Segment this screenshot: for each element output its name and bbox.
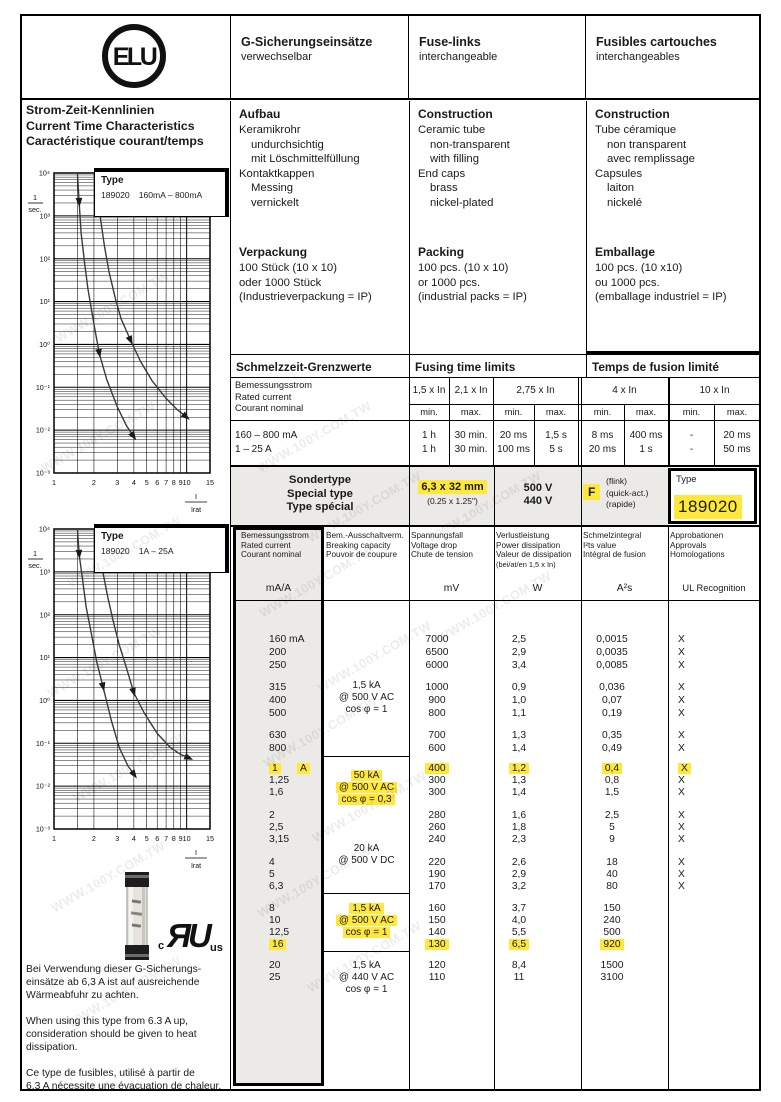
ul-mark-letters: ЯU [166, 917, 213, 954]
i2t-cell-text: 0,0035 [596, 647, 628, 658]
table-vline [578, 378, 579, 465]
voltage-drop-cell: 600 [397, 743, 477, 754]
construction-line: mit Löschmittelfüllung [239, 152, 403, 167]
i2t-cell-text: 5 [609, 822, 615, 833]
current-cell-text: 20 [269, 960, 280, 971]
breaking-group-line [324, 951, 409, 952]
column-header: ApprobationenApprovalsHomologations [670, 531, 725, 560]
power-dissipation-cell-text: 2,9 [512, 869, 526, 880]
ul-recognition-cell: X [678, 730, 685, 741]
left-column: Strom-Zeit-Kennlinien Current Time Chara… [20, 101, 230, 1089]
fusing-label-line: Bemessungsstrom [235, 380, 312, 392]
current-cell: 25 [269, 972, 280, 983]
logo-cell: ELU [20, 14, 230, 98]
power-dissipation-cell-text: 1,0 [512, 695, 526, 706]
packing-block: Emballage100 pcs. (10 x10)ou 1000 pcs.(e… [595, 245, 756, 305]
legend-values: 189020160mA – 800mA [101, 190, 219, 200]
chart-160ma-800ma: 10⁴10³10²10¹10⁰10⁻¹10⁻²10⁻³1sec.12345678… [20, 163, 230, 515]
i2t-cell-text: 240 [603, 915, 620, 926]
legend-type-value: 189020 [101, 190, 130, 200]
ul-recognition-cell-text: X [678, 682, 685, 693]
current-cell: 3,15 [269, 834, 289, 845]
construction-heading: Construction [418, 107, 580, 121]
minmax-header: min. [493, 407, 534, 417]
ul-recognition-cell-text: X [678, 775, 685, 786]
table-row: 20065002,90,0035X [231, 647, 760, 659]
construction-line: nickel-plated [418, 196, 580, 211]
footnotes: Bei Verwendung dieser G-Sicherungs-einsä… [26, 963, 228, 1102]
fusing-value: 1 h [409, 444, 449, 455]
axis-label: I [195, 848, 197, 857]
voltage-drop-cell: 110 [397, 972, 477, 983]
i2t-cell: 0,8 [576, 775, 648, 786]
footnote-line: Wärmeabfuhr zu achten. [26, 989, 228, 1002]
special-label-fr: Type spécial [231, 501, 409, 515]
table-row: 161306,5920 [231, 939, 760, 951]
current-cell: 2 [269, 810, 275, 821]
ul-recognition-cell-text: X [678, 834, 685, 845]
power-dissipation-cell: 2,6 [483, 857, 555, 868]
type-value: 189020 [674, 495, 742, 519]
axis-label: 10⁻³ [36, 469, 51, 478]
table-row: 25110113100 [231, 972, 760, 984]
column-unit: A²s [581, 583, 668, 594]
breaking-group-line [324, 756, 409, 757]
voltage-drop-cell: 120 [397, 960, 477, 971]
ul-recognition-cell-text: X [678, 743, 685, 754]
ul-recognition-cell-text: X [678, 881, 685, 892]
voltage-drop-cell: 220 [397, 857, 477, 868]
fusing-title-fr: Temps de fusion limité [586, 355, 760, 377]
axis-label: 10¹ [40, 297, 51, 306]
column-header-line: Voltage drop [411, 541, 473, 551]
fuse-size-inch: (0.25 x 1.25") [410, 496, 495, 506]
current-cell-text: 4 [269, 857, 275, 868]
table-vline [668, 527, 669, 1089]
fusing-label-line: Courant nominal [235, 403, 312, 415]
legend-type-label: Type [101, 531, 219, 542]
ul-recognition-cell-text: X [678, 822, 685, 833]
i2t-cell-text: 0,49 [602, 743, 622, 754]
table-row: 22801,62,5X [231, 810, 760, 822]
current-cell: 10 [269, 915, 280, 926]
column-unit: mV [409, 583, 494, 594]
column-header-line: Spannungsfall [411, 531, 473, 541]
footnote: Bei Verwendung dieser G-Sicherungs-einsä… [26, 963, 228, 1002]
power-dissipation-cell: 3,7 [483, 903, 555, 914]
info-column-2: ConstructionTube céramiquenon transparen… [586, 101, 760, 354]
voltage-drop-cell: 1000 [397, 682, 477, 693]
table-row: 42202,618X [231, 857, 760, 869]
power-dissipation-cell: 1,3 [483, 730, 555, 741]
ul-recognition-cell-text: X [678, 660, 685, 671]
voltage-drop-cell-text: 130 [425, 939, 448, 950]
current-cell: 200 [269, 647, 286, 658]
current-cell: 8 [269, 903, 275, 914]
fusing-value: 1 s [624, 444, 668, 455]
table-row: 101504,0240 [231, 915, 760, 927]
power-dissipation-cell-text: 2,6 [512, 857, 526, 868]
axis-label: 10⁻¹ [36, 383, 51, 392]
fusing-value: 30 min. [449, 430, 493, 441]
special-label-en: Special type [231, 488, 409, 502]
power-dissipation-cell-text: 3,4 [512, 660, 526, 671]
ul-recognition-cell: X [678, 775, 685, 786]
table-row: 8006001,40,49X [231, 743, 760, 755]
column-header-line: Chute de tension [411, 550, 473, 560]
power-dissipation-cell-text: 3,7 [512, 903, 526, 914]
column-unit: mA/A [233, 583, 324, 594]
axis-label: 7 [164, 834, 168, 843]
power-dissipation-cell-text: 2,5 [512, 634, 526, 645]
title-line-en: Current Time Characteristics [26, 119, 204, 135]
packing-line: 100 pcs. (10 x10) [595, 261, 756, 276]
construction-block: AufbauKeramikrohrundurchsichtigmit Lösch… [239, 107, 403, 210]
ul-recognition-cell: X [678, 708, 685, 719]
table-row: 31510000,90,036X [231, 682, 760, 694]
i2t-cell-text: 9 [609, 834, 615, 845]
i2t-cell-text: 40 [606, 869, 617, 880]
chart-legend: Type1890201A – 25A [94, 524, 229, 573]
voltage-drop-cell: 160 [397, 903, 477, 914]
footnote-line: Bei Verwendung dieser G-Sicherungs- [26, 963, 228, 976]
column-header-line: Pouvoir de coupure [326, 550, 404, 560]
axis-label: 5 [145, 834, 149, 843]
power-dissipation-cell: 5,5 [483, 927, 555, 938]
axis-label: I [195, 492, 197, 501]
voltage-drop-cell-text: 600 [428, 743, 445, 754]
voltage-drop-cell-text: 260 [428, 822, 445, 833]
axis-label: 8 [172, 478, 176, 487]
fusing-value: 400 ms [624, 430, 668, 441]
power-dissipation-cell-text: 4,0 [512, 915, 526, 926]
axis-label: 10 [183, 478, 191, 487]
elu-logo-icon: ELU [99, 21, 169, 91]
column-header-line: Approbationen [670, 531, 725, 541]
voltage-drop-cell-text: 6500 [426, 647, 449, 658]
ul-recognition-cell: X [678, 647, 685, 658]
curve-arrowhead [99, 682, 106, 692]
ratings-table: BemessungsstromRated currentCourant nomi… [231, 527, 760, 1089]
multiple-of-in-header: 1,5 x In [409, 385, 449, 396]
axis-label: 3 [115, 834, 119, 843]
i2t-cell: 0,35 [576, 730, 648, 741]
voltage-drop-cell: 280 [397, 810, 477, 821]
title-line-fr: Caractéristique courant/temps [26, 134, 204, 150]
i2t-cell-text: 80 [606, 881, 617, 892]
rated-current-column-box [233, 527, 324, 1086]
current-unit-cell-text: A [297, 763, 310, 774]
i2t-cell: 0,0015 [576, 634, 648, 645]
curve-arrowhead [76, 198, 83, 207]
i2t-cell: 1,5 [576, 787, 648, 798]
i2t-cell: 2,5 [576, 810, 648, 821]
axis-label: 2 [92, 834, 96, 843]
fusing-row-label: 1 – 25 A [235, 444, 272, 455]
fusing-value: 30 min. [449, 444, 493, 455]
current-cell: 4 [269, 857, 275, 868]
current-cell-text: 16 [269, 939, 286, 950]
axis-label: 3 [115, 478, 119, 487]
axis-label: 6 [155, 478, 159, 487]
fusing-value: - [669, 430, 714, 441]
axis-label: 8 [172, 834, 176, 843]
table-row: 4009001,00,07X [231, 695, 760, 707]
power-dissipation-cell: 2,9 [483, 647, 555, 658]
voltage-drop-cell-text: 280 [428, 810, 445, 821]
footnote-line: einsätze ab 6,3 A ist auf ausreichende [26, 976, 228, 989]
table-row: 6307001,30,35X [231, 730, 760, 742]
header-title: G-Sicherungseinsätze [241, 35, 408, 49]
power-dissipation-cell-text: 6,5 [509, 939, 529, 950]
ul-recognition-cell: X [678, 810, 685, 821]
axis-label: Irat [191, 863, 201, 870]
voltage-drop-cell-text: 300 [428, 787, 445, 798]
voltage-drop-cell: 300 [397, 787, 477, 798]
power-dissipation-cell: 1,6 [483, 810, 555, 821]
voltage-drop-cell: 300 [397, 775, 477, 786]
power-dissipation-cell: 0,9 [483, 682, 555, 693]
speed-desc-fr: (rapide) [606, 499, 649, 511]
construction-heading: Construction [595, 107, 754, 121]
header: ELU G-Sicherungseinsätze verwechselbar F… [20, 14, 759, 100]
minmax-header: max. [714, 407, 760, 417]
construction-line: Ceramic tube [418, 123, 580, 138]
packing-line: (emballage industriel = IP) [595, 290, 756, 305]
ul-recognition-cell: X [678, 787, 685, 798]
voltage-drop-cell: 7000 [397, 634, 477, 645]
curve-arrowhead [129, 687, 136, 697]
special-size-cell: 6,3 x 32 mm (0.25 x 1.25") [409, 467, 495, 525]
column-header: VerlustleistungPower dissipationValeur d… [496, 531, 571, 569]
voltage-drop-cell-text: 110 [429, 972, 445, 983]
axis-label: sec. [28, 205, 41, 214]
axis-label: 10⁻² [36, 782, 51, 791]
table-row: 81603,7150 [231, 903, 760, 915]
i2t-cell-text: 0,0085 [596, 660, 628, 671]
power-dissipation-cell-text: 3,2 [512, 881, 526, 892]
current-cell-text: 10 [269, 915, 280, 926]
breaking-line: cos φ = 1 [324, 984, 409, 996]
voltage-drop-cell: 130 [397, 939, 477, 950]
ul-recognition-cell: X [678, 881, 685, 892]
power-dissipation-cell-text: 1,4 [512, 743, 526, 754]
axis-label: 4 [132, 478, 136, 487]
fusing-value: 1 h [409, 430, 449, 441]
special-type-row: Sondertype Special type Type spécial 6,3… [231, 465, 760, 527]
table-vline [581, 527, 582, 1089]
ul-recognition-cell: X [678, 822, 685, 833]
axis-label: 15 [206, 834, 214, 843]
current-cell: 160 mA [269, 634, 305, 645]
minmax-header: min. [669, 407, 714, 417]
fusing-value: 8 ms [581, 430, 624, 441]
axis-label: 1 [33, 193, 37, 202]
curve-arrowhead [129, 769, 137, 778]
voltage-drop-cell-text: 6000 [426, 660, 449, 671]
power-dissipation-cell-text: 1,8 [512, 822, 526, 833]
footnote-line: 6,3 A nécessite une évacuation de chaleu… [26, 1080, 228, 1093]
table-row: 51902,940X [231, 869, 760, 881]
column-header-line: Schmelzintegral [583, 531, 646, 541]
i2t-cell-text: 3100 [601, 972, 624, 983]
voltage-drop-cell: 170 [397, 881, 477, 892]
voltage-drop-cell-text: 400 [425, 763, 448, 774]
packing-line: or 1000 pcs. [418, 276, 582, 291]
packing-line: 100 pcs. (10 x 10) [418, 261, 582, 276]
column-header-line: Intégral de fusion [583, 550, 646, 560]
voltage-drop-cell: 6500 [397, 647, 477, 658]
construction-block: ConstructionTube céramiquenon transparen… [595, 107, 754, 210]
right-column: AufbauKeramikrohrundurchsichtigmit Lösch… [230, 101, 760, 1089]
minmax-header: max. [534, 407, 578, 417]
breaking-group-line [324, 893, 409, 894]
axis-label: 7 [164, 478, 168, 487]
table-row: 160 mA70002,50,0015X [231, 634, 760, 646]
special-voltage-cell: 500 V 440 V [494, 467, 581, 525]
axis-label: 10⁻² [36, 426, 51, 435]
multiple-of-in-header: 4 x In [581, 385, 668, 396]
minmax-header: max. [624, 407, 668, 417]
axis-label: 10¹ [40, 653, 51, 662]
current-cell: 16 [269, 939, 286, 950]
legend-values: 1890201A – 25A [101, 546, 219, 556]
packing-block: Verpackung100 Stück (10 x 10)oder 1000 S… [239, 245, 405, 305]
axis-label: 10⁴ [39, 169, 50, 178]
construction-line: laiton [595, 181, 754, 196]
footnote-line: Ce type de fusibles, utilisé à partir de [26, 1067, 228, 1080]
thick-border-segment [586, 351, 760, 354]
fusing-title-de: Schmelzzeit-Grenzwerte [231, 355, 409, 377]
power-dissipation-cell-text: 1,3 [512, 730, 526, 741]
current-cell-text: 500 [269, 708, 286, 719]
fusing-label-line: Rated current [235, 392, 312, 404]
column-header-line: Bem.-Ausschaltverm. [326, 531, 404, 541]
current-cell: 800 [269, 743, 286, 754]
fusing-title-en: Fusing time limits [409, 355, 586, 377]
voltage-drop-cell: 240 [397, 834, 477, 845]
ul-recognition-cell-text: X [678, 647, 685, 658]
legend-range: 160mA – 800mA [139, 190, 203, 200]
table-row: 2,52601,85X [231, 822, 760, 834]
i2t-cell-text: 0,036 [599, 682, 625, 693]
i2t-cell: 0,19 [576, 708, 648, 719]
curve-arrowhead [126, 335, 133, 345]
multiple-of-in-header: 2,1 x In [449, 385, 493, 396]
minmax-header: min. [409, 407, 449, 417]
i2t-cell: 3100 [576, 972, 648, 983]
current-cell-text: 250 [269, 660, 286, 671]
header-col-fr: Fusibles cartouches interchangeables [585, 14, 759, 98]
header-col-en: Fuse-links interchangeable [408, 14, 585, 98]
current-cell: 1 [269, 763, 281, 774]
axis-label: 10⁻¹ [36, 739, 51, 748]
voltage-drop-cell: 6000 [397, 660, 477, 671]
header-subtitle: interchangeable [419, 51, 585, 63]
i2t-cell-text: 0,35 [602, 730, 622, 741]
ul-recognition-cell: X [678, 857, 685, 868]
axis-label: 1 [52, 834, 56, 843]
power-dissipation-cell: 6,5 [483, 939, 555, 950]
voltage-drop-cell-text: 300 [428, 775, 445, 786]
current-cell-text: 6,3 [269, 881, 283, 892]
ul-recognition-cell: X [678, 695, 685, 706]
column-unit: W [494, 583, 581, 594]
i2t-cell-text: 1500 [601, 960, 624, 971]
packing-line: oder 1000 Stück [239, 276, 405, 291]
construction-line: with filling [418, 152, 580, 167]
voltage-drop-cell: 190 [397, 869, 477, 880]
ul-recognized-icon: c ЯU us [150, 911, 228, 955]
current-cell-text: 12,5 [269, 927, 289, 938]
header-subtitle: verwechselbar [241, 51, 408, 63]
info-column-1: ConstructionCeramic tubenon-transparentw… [409, 101, 586, 354]
construction-line: vernickelt [239, 196, 403, 211]
voltage-2: 440 V [495, 495, 581, 508]
ul-recognition-cell: X [678, 834, 685, 845]
footnote-line: consideration should be given to heat [26, 1028, 228, 1041]
ul-recognition-cell: X [678, 634, 685, 645]
i2t-cell: 0,49 [576, 743, 648, 754]
current-cell: 315 [269, 682, 286, 693]
fuse-size: 6,3 x 32 mm [418, 480, 486, 494]
footnote: Ce type de fusibles, utilisé à partir de… [26, 1067, 228, 1093]
axis-label: 10⁴ [39, 525, 50, 534]
i2t-cell-text: 1,5 [605, 787, 619, 798]
header-subtitle: interchangeables [596, 51, 759, 63]
current-cell: 12,5 [269, 927, 289, 938]
table-row: 12,51405,5500 [231, 927, 760, 939]
ul-mark-us: us [210, 942, 223, 954]
axis-label: 10² [40, 254, 51, 263]
power-dissipation-cell: 1,1 [483, 708, 555, 719]
voltage-drop-cell-text: 1000 [426, 682, 449, 693]
power-dissipation-cell-text: 2,9 [512, 647, 526, 658]
ul-recognition-cell-text: X [678, 869, 685, 880]
i2t-cell: 9 [576, 834, 648, 845]
current-unit-cell: A [297, 763, 310, 774]
i2t-cell-text: 18 [606, 857, 617, 868]
current-cell: 20 [269, 960, 280, 971]
power-dissipation-cell: 2,9 [483, 869, 555, 880]
logo-text: ELU [113, 43, 157, 71]
axis-label: 15 [206, 478, 214, 487]
power-dissipation-cell: 1,0 [483, 695, 555, 706]
chart-1a-25a: 10⁴10³10²10¹10⁰10⁻¹10⁻²10⁻³1sec.12345678… [20, 519, 230, 871]
fusing-value: 5 s [534, 444, 578, 455]
current-cell: 5 [269, 869, 275, 880]
column-header-line: Power dissipation [496, 541, 571, 551]
axis-label: 10⁰ [39, 696, 50, 705]
power-dissipation-cell-text: 1,2 [509, 763, 529, 774]
i2t-cell-text: 0,0015 [596, 634, 628, 645]
construction-line: undurchsichtig [239, 138, 403, 153]
voltage-drop-cell-text: 900 [428, 695, 445, 706]
fusing-row-label: 160 – 800 mA [235, 430, 297, 441]
footnote-line: dissipation. [26, 1041, 228, 1054]
current-cell: 1,25 [269, 775, 289, 786]
table-vline [494, 527, 495, 1089]
power-dissipation-cell: 11 [483, 972, 555, 983]
voltage-drop-cell: 700 [397, 730, 477, 741]
voltage-drop-cell-text: 220 [428, 857, 445, 868]
ul-recognition-cell-text: X [678, 763, 691, 774]
packing-line: (Industrieverpackung = IP) [239, 290, 405, 305]
column-header-line: Courant nominal [241, 550, 309, 560]
i2t-cell: 40 [576, 869, 648, 880]
i2t-cell: 5 [576, 822, 648, 833]
chart-legend: Type189020160mA – 800mA [94, 168, 229, 217]
